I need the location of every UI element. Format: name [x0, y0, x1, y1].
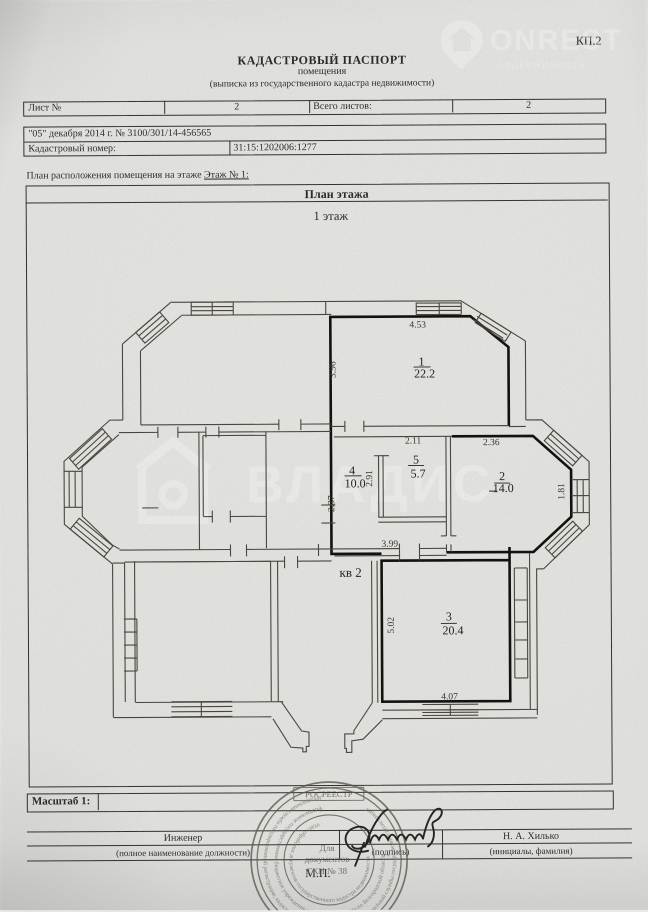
svg-text:ONREST: ONREST	[490, 24, 623, 57]
svg-text:20.4: 20.4	[442, 623, 463, 637]
svg-text:10.0: 10.0	[345, 476, 366, 490]
svg-text:5: 5	[413, 453, 419, 467]
svg-text:1.81: 1.81	[557, 483, 567, 500]
svg-text:3.96: 3.96	[329, 361, 339, 378]
svg-text:2.91: 2.91	[365, 470, 375, 487]
svg-text:22.2: 22.2	[414, 366, 435, 380]
svg-text:ГКН № 38: ГКН № 38	[307, 866, 347, 876]
svg-text:2.11: 2.11	[405, 436, 422, 446]
svg-text:4: 4	[349, 463, 355, 477]
svg-text:5.02: 5.02	[387, 617, 397, 634]
svg-text:2.36: 2.36	[483, 438, 500, 448]
svg-text:4.53: 4.53	[409, 320, 426, 330]
svg-text:3.99: 3.99	[381, 540, 398, 550]
svg-text:документов: документов	[305, 854, 350, 864]
svg-text:3: 3	[446, 609, 452, 623]
svg-text:4.07: 4.07	[441, 692, 458, 702]
svg-text:НЕДВИЖИМОСТЬ: НЕДВИЖИМОСТЬ	[498, 61, 587, 70]
svg-text:2.37: 2.37	[327, 495, 337, 512]
svg-text:Для: Для	[320, 843, 335, 853]
svg-text:5.7: 5.7	[411, 466, 426, 480]
svg-text:14.0: 14.0	[493, 481, 514, 495]
svg-text:кв 2: кв 2	[339, 565, 361, 580]
